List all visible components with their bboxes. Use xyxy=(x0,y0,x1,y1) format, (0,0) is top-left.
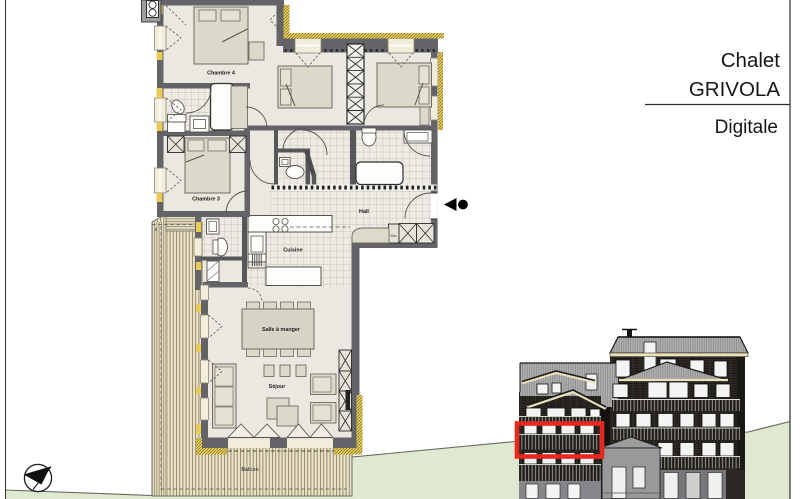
svg-text:Balcon: Balcon xyxy=(241,467,258,473)
svg-text:Cuisine: Cuisine xyxy=(283,248,302,254)
svg-text:Chambre 3: Chambre 3 xyxy=(192,197,220,203)
svg-text:GRIVOLA: GRIVOLA xyxy=(689,78,780,101)
svg-text:Digitale: Digitale xyxy=(715,117,778,138)
svg-text:Elec.: Elec. xyxy=(390,234,397,238)
svg-text:Chambre 4: Chambre 4 xyxy=(207,71,235,77)
svg-text:Chalet: Chalet xyxy=(721,49,781,72)
svg-text:Hall: Hall xyxy=(359,209,369,215)
svg-text:Séjour: Séjour xyxy=(269,384,287,390)
svg-text:Salle à manger: Salle à manger xyxy=(262,327,301,333)
